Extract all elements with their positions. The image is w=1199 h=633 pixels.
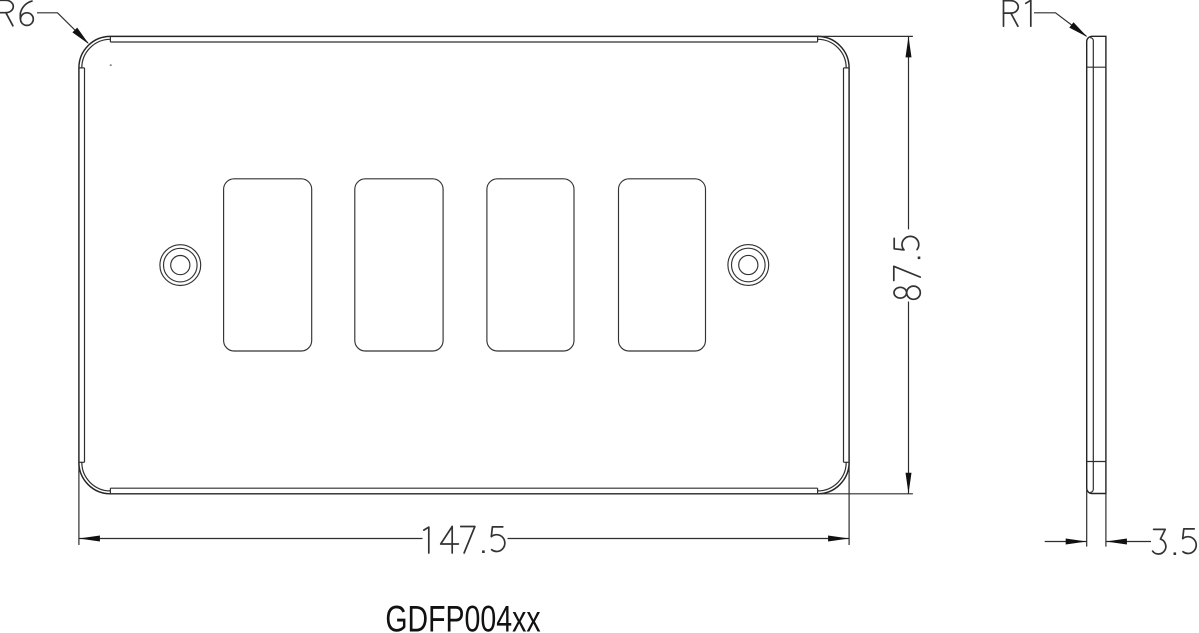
svg-text:GDFP004xx: GDFP004xx — [385, 599, 541, 633]
